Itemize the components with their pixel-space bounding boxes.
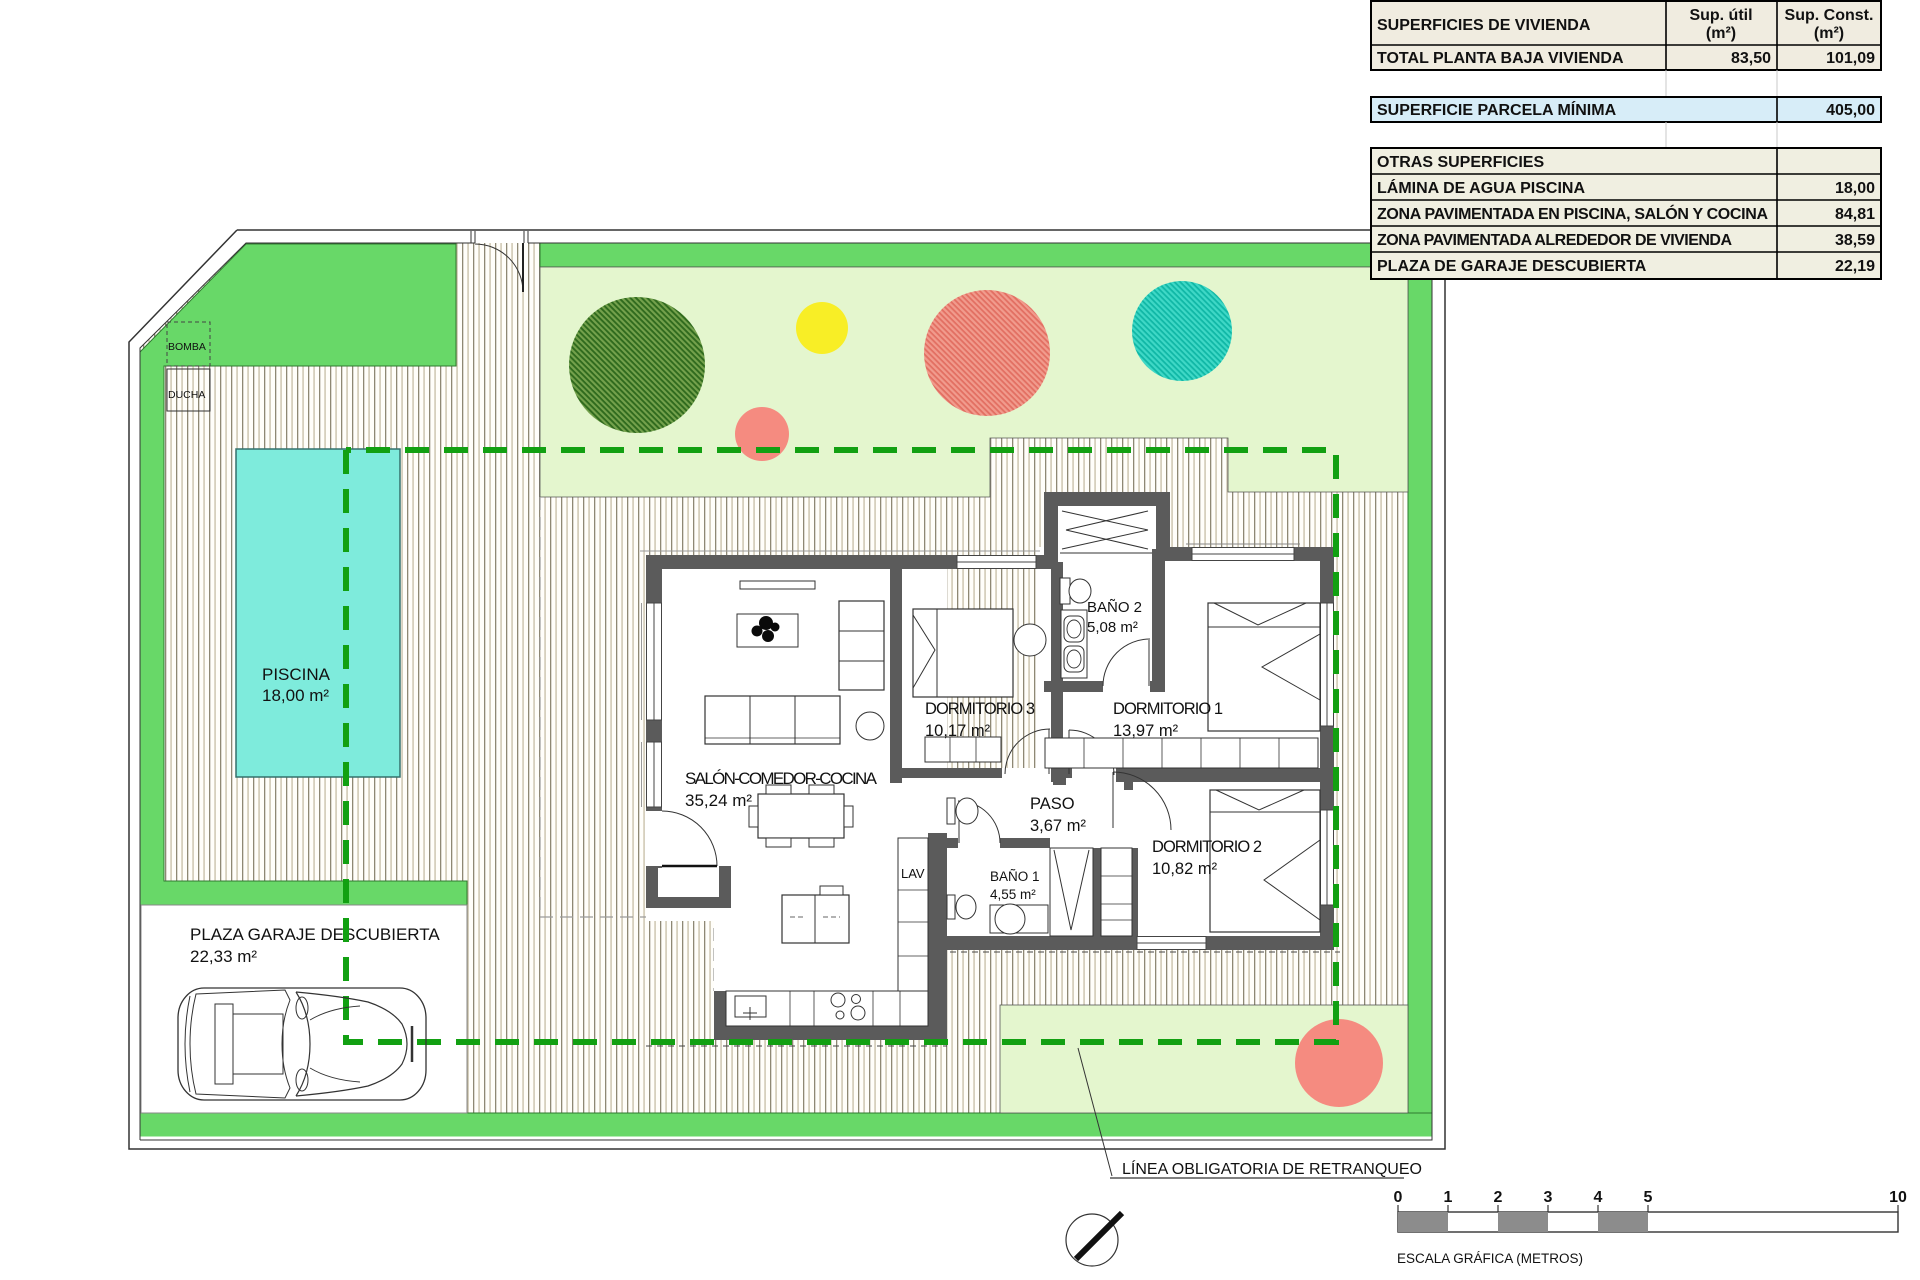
- svg-text:22,33 m²: 22,33 m²: [190, 947, 257, 966]
- svg-text:DORMITORIO 1: DORMITORIO 1: [1113, 700, 1223, 718]
- svg-text:35,24 m²: 35,24 m²: [685, 791, 752, 810]
- svg-text:DUCHA: DUCHA: [168, 389, 205, 401]
- svg-text:LAV: LAV: [901, 866, 925, 881]
- svg-text:0: 0: [1394, 1189, 1403, 1206]
- svg-text:3,67 m²: 3,67 m²: [1030, 817, 1086, 835]
- svg-text:BAÑO 1: BAÑO 1: [990, 869, 1040, 884]
- svg-text:18,00: 18,00: [1835, 180, 1875, 197]
- svg-text:4,55 m²: 4,55 m²: [990, 887, 1036, 902]
- svg-text:38,59: 38,59: [1835, 232, 1875, 249]
- svg-text:PLAZA GARAJE DESCUBIERTA: PLAZA GARAJE DESCUBIERTA: [190, 925, 440, 944]
- svg-text:22,19: 22,19: [1835, 258, 1875, 275]
- svg-text:TOTAL PLANTA BAJA VIVIENDA: TOTAL PLANTA BAJA VIVIENDA: [1377, 50, 1624, 67]
- svg-text:10,82 m²: 10,82 m²: [1152, 860, 1218, 878]
- svg-text:405,00: 405,00: [1826, 102, 1875, 119]
- svg-text:PLAZA DE GARAJE DESCUBIERTA: PLAZA DE GARAJE DESCUBIERTA: [1377, 258, 1647, 275]
- svg-text:5,08 m²: 5,08 m²: [1087, 619, 1138, 636]
- svg-text:10,17 m²: 10,17 m²: [925, 722, 991, 740]
- svg-text:5: 5: [1644, 1189, 1653, 1206]
- svg-text:101,09: 101,09: [1826, 50, 1875, 67]
- svg-text:SUPERFICIES DE VIVIENDA: SUPERFICIES DE VIVIENDA: [1377, 17, 1591, 34]
- svg-text:OTRAS SUPERFICIES: OTRAS SUPERFICIES: [1377, 154, 1544, 171]
- svg-text:DORMITORIO 2: DORMITORIO 2: [1152, 838, 1262, 856]
- svg-text:84,81: 84,81: [1835, 206, 1875, 223]
- svg-text:ESCALA GRÁFICA (METROS): ESCALA GRÁFICA (METROS): [1397, 1251, 1583, 1266]
- svg-text:10: 10: [1889, 1189, 1907, 1206]
- svg-text:Sup. Const.: Sup. Const.: [1785, 7, 1874, 24]
- svg-text:1: 1: [1444, 1189, 1453, 1206]
- svg-text:83,50: 83,50: [1731, 50, 1771, 67]
- svg-text:BAÑO 2: BAÑO 2: [1087, 599, 1142, 616]
- svg-text:3: 3: [1544, 1189, 1553, 1206]
- svg-text:ZONA PAVIMENTADA ALREDEDOR DE: ZONA PAVIMENTADA ALREDEDOR DE VIVIENDA: [1377, 232, 1732, 249]
- svg-text:4: 4: [1594, 1189, 1603, 1206]
- svg-text:LÁMINA DE AGUA PISCINA: LÁMINA DE AGUA PISCINA: [1377, 178, 1585, 197]
- svg-text:PASO: PASO: [1030, 795, 1075, 813]
- svg-text:13,97 m²: 13,97 m²: [1113, 722, 1179, 740]
- svg-text:(m²): (m²): [1814, 25, 1844, 42]
- svg-text:(m²): (m²): [1706, 25, 1736, 42]
- svg-text:BOMBA: BOMBA: [168, 341, 206, 353]
- svg-text:Sup. útil: Sup. útil: [1689, 7, 1752, 24]
- svg-text:SALÓN-COMEDOR-COCINA: SALÓN-COMEDOR-COCINA: [685, 769, 878, 788]
- svg-text:DORMITORIO 3: DORMITORIO 3: [925, 700, 1035, 718]
- svg-text:SUPERFICIE PARCELA MÍNIMA: SUPERFICIE PARCELA MÍNIMA: [1377, 100, 1617, 119]
- svg-text:LÍNEA OBLIGATORIA DE RETRANQUE: LÍNEA OBLIGATORIA DE RETRANQUEO: [1122, 1159, 1422, 1178]
- svg-text:ZONA PAVIMENTADA EN PISCINA, S: ZONA PAVIMENTADA EN PISCINA, SALÓN Y COC…: [1377, 204, 1768, 223]
- svg-text:18,00 m²: 18,00 m²: [262, 686, 329, 705]
- svg-text:PISCINA: PISCINA: [262, 665, 331, 684]
- svg-text:2: 2: [1494, 1189, 1503, 1206]
